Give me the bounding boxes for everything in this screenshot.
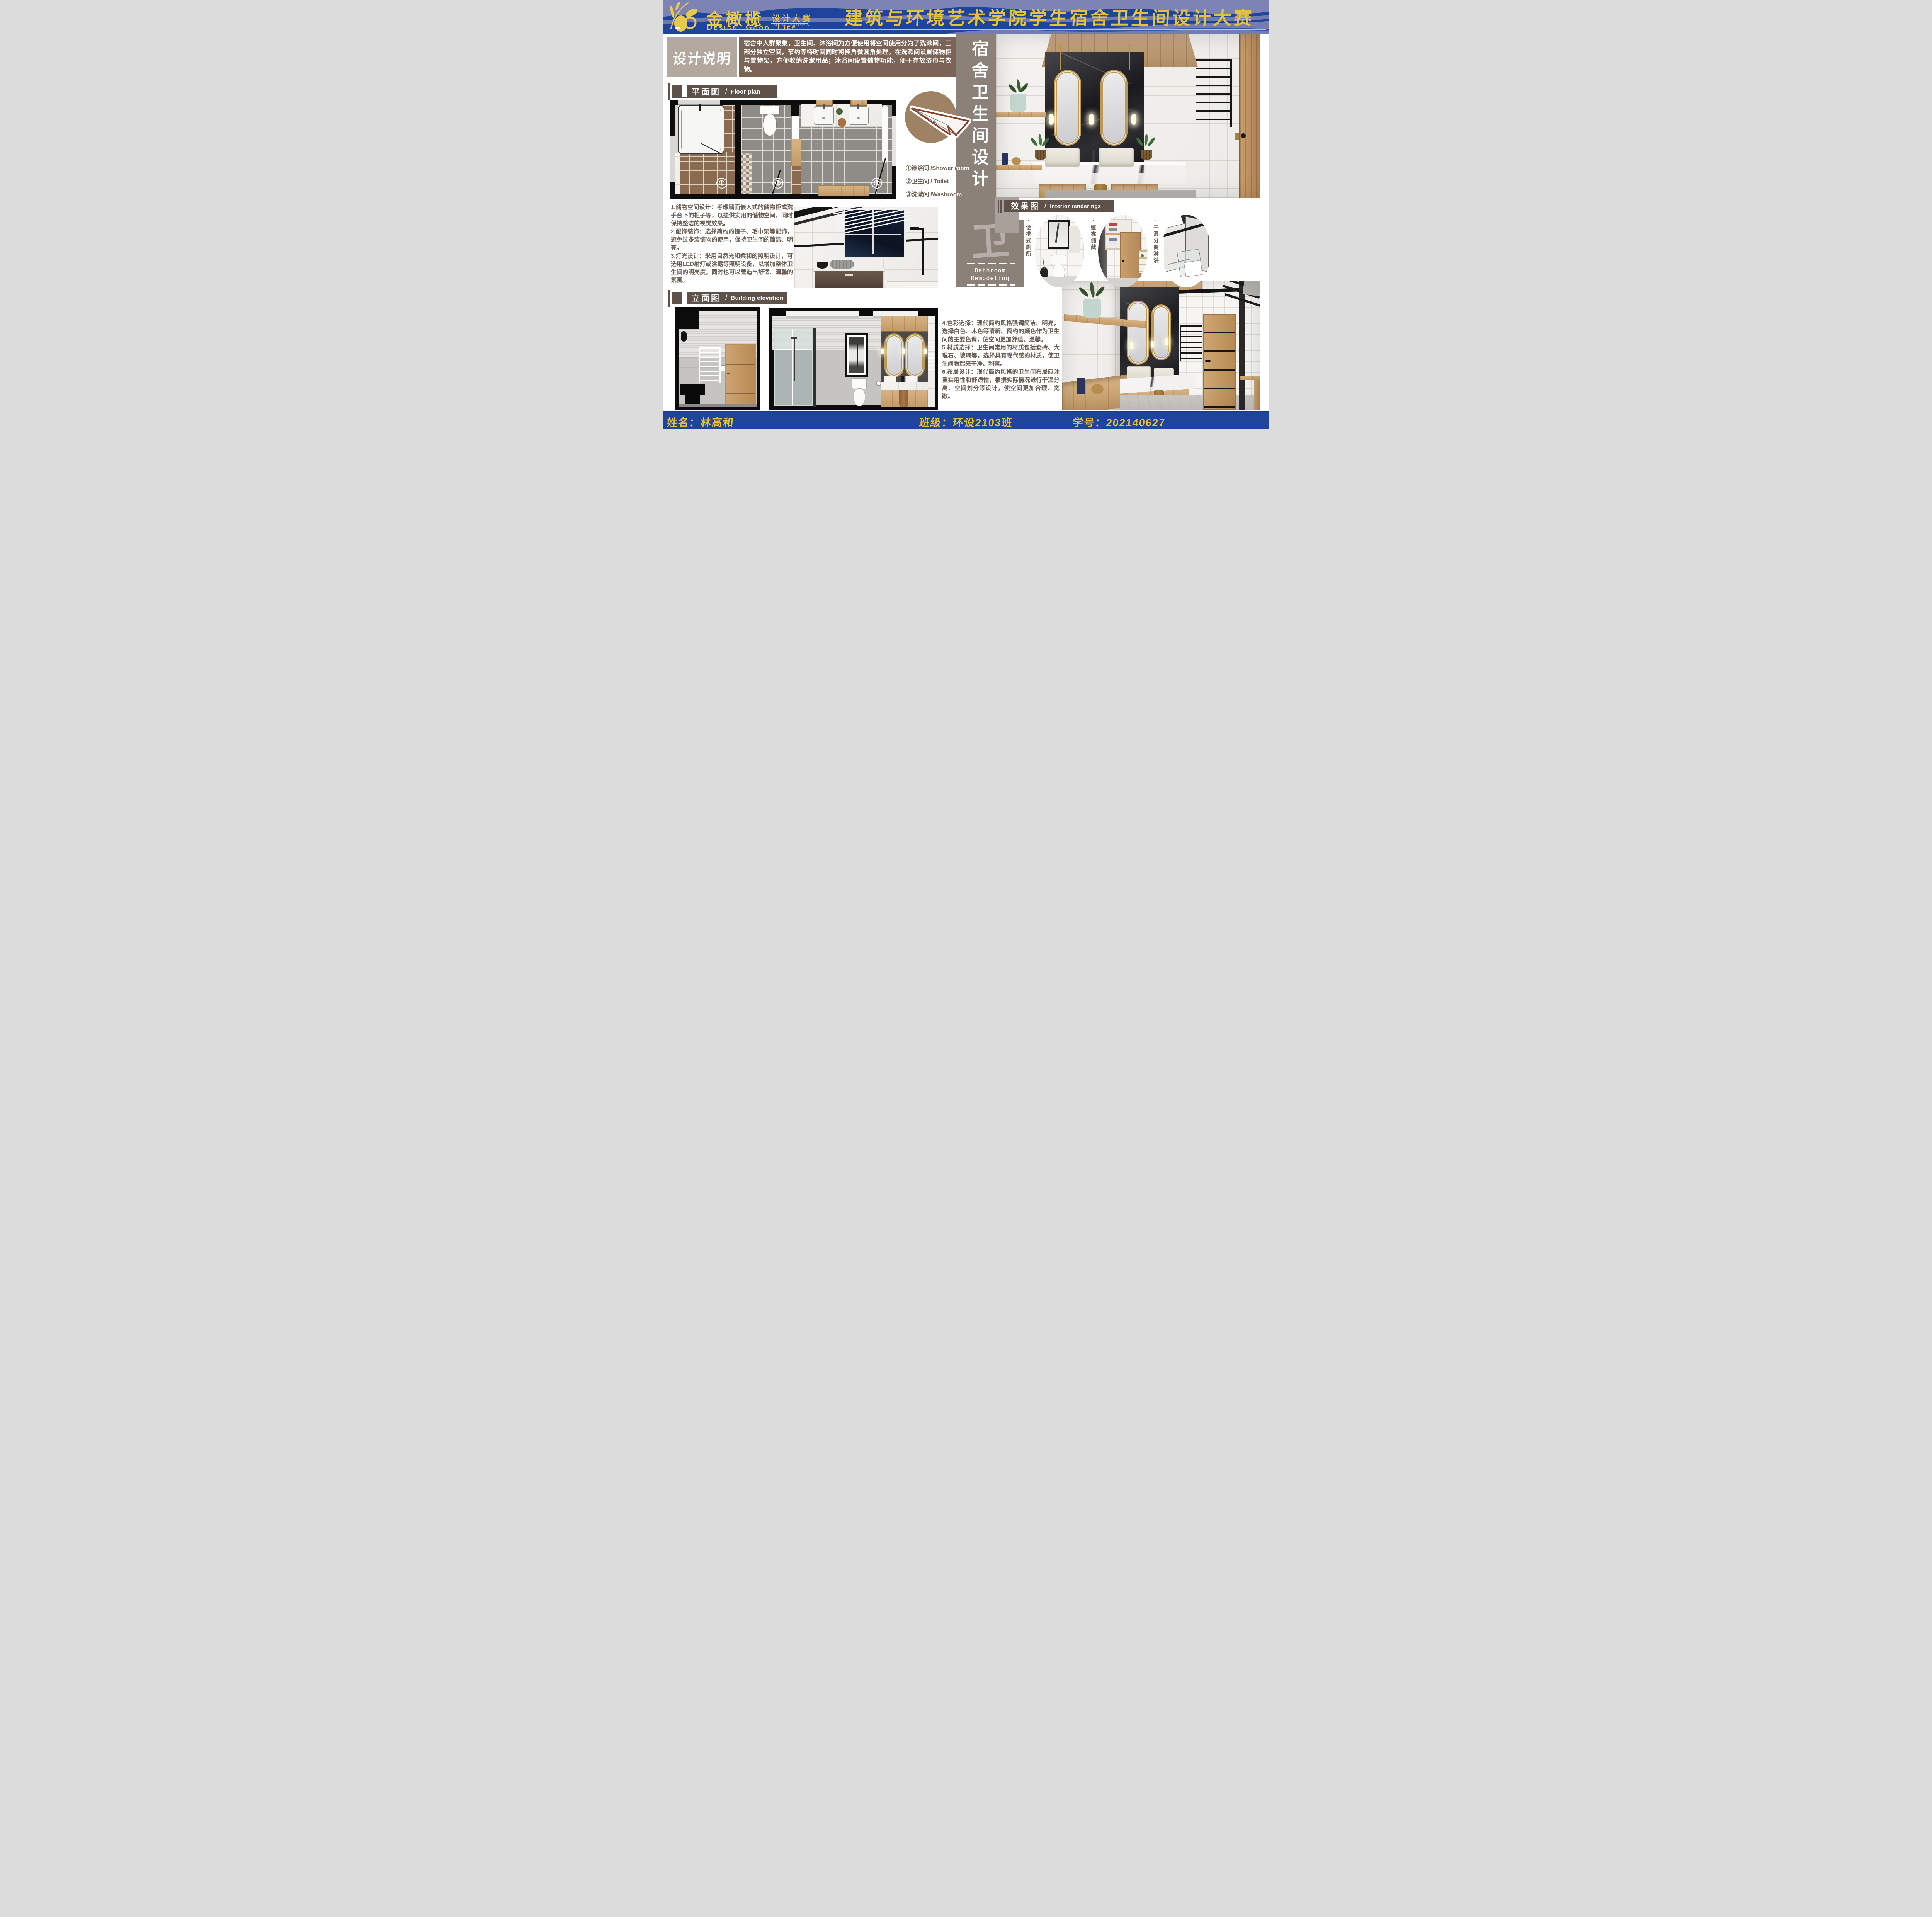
note-paragraph-3: 3.灯光设计：采用自然光和柔和的照明设计，可选用LED射灯或浴霸等照明设备，以增… bbox=[671, 252, 793, 284]
elevation-header-zh: 立面图 bbox=[692, 292, 721, 304]
elev1-console-top bbox=[680, 384, 705, 395]
plan-shower-floor bbox=[680, 150, 735, 194]
thumb-label-niche-storage: ·壁龛储藏 bbox=[1090, 217, 1097, 275]
elev1-black-notch bbox=[679, 311, 699, 329]
glass-frame-v bbox=[792, 329, 793, 405]
elev2-upper-cabinet bbox=[881, 316, 928, 332]
elev2-shower-glass bbox=[774, 328, 813, 406]
design-note-body: 宿舍中人群聚集，卫生间、沐浴间为方便使用将空间使用分为了洗漱间，三部分独立空间，… bbox=[744, 39, 951, 75]
header-banner: 金橄榄 · 设计大赛 DESIGN COMPETITION Design. Go… bbox=[663, 0, 1269, 34]
plan-wall-segment bbox=[791, 105, 799, 116]
elev2-mirror-1 bbox=[884, 333, 904, 378]
renderings-header-line-1 bbox=[998, 200, 999, 213]
elev1-sconce bbox=[681, 331, 687, 342]
thumb-oval-dry-wet-shower bbox=[1162, 215, 1211, 287]
elevation-header-sep: / bbox=[725, 294, 727, 302]
design-note-body-box: 宿舍中人群聚集，卫生间、沐浴间为方便使用将空间使用分为了洗漱间，三部分独立空间，… bbox=[739, 37, 956, 77]
photo-vignette bbox=[996, 34, 1260, 198]
footer-class: 班级：环设2103班 bbox=[918, 414, 1013, 429]
art-leaf-streak bbox=[1055, 223, 1060, 243]
brand-slogan: Design. Good. Life bbox=[707, 23, 797, 32]
plan-toilet-bowl bbox=[763, 114, 777, 136]
design-note-label: 设计说明 bbox=[666, 48, 738, 68]
elev1-door bbox=[725, 344, 756, 406]
footer-name: 姓名：林高和 bbox=[666, 414, 735, 429]
thumb-oval-portable-toilet bbox=[1035, 215, 1084, 287]
elevation-drawing-2 bbox=[769, 308, 938, 410]
floor-plan-header-line bbox=[668, 83, 670, 100]
elevation-header-line bbox=[668, 290, 670, 307]
photo-main-rendering bbox=[996, 34, 1260, 198]
window-mullion-h bbox=[845, 234, 901, 235]
shower-set-head bbox=[791, 337, 797, 339]
poster-title: 建筑与环境艺术学院学生宿舍卫生间设计大赛 bbox=[832, 3, 1267, 30]
elev2-vase bbox=[901, 376, 904, 382]
legend-text: ③洗漱间 /Washroom bbox=[906, 190, 962, 198]
footer-bar: 姓名：林高和 班级：环设2103班 学号：202140627 bbox=[663, 411, 1269, 429]
pin-vase bbox=[817, 262, 828, 269]
plan-brown-strip-2 bbox=[791, 166, 801, 194]
plan-sink-drain bbox=[822, 117, 825, 119]
renderings-header-sep: / bbox=[1044, 202, 1046, 210]
plan-shower-valve bbox=[699, 104, 701, 111]
plan-door-leaf-panel bbox=[791, 116, 799, 139]
plan-toilet-tank bbox=[760, 106, 780, 114]
floor-plan-header-notch bbox=[682, 83, 687, 97]
note-paragraph-2: 2.配饰装饰：选择简约的镜子、毛巾架等配饰，避免过多装饰物的使用，保持卫生间的简… bbox=[671, 228, 793, 252]
elev2-pendant-2 bbox=[902, 348, 905, 354]
plan-sink-2 bbox=[849, 106, 869, 125]
plan-sink-1 bbox=[814, 106, 834, 125]
plan-round-stool bbox=[838, 118, 846, 127]
banner-dash-top bbox=[967, 263, 1015, 264]
cabinet-body bbox=[815, 271, 883, 288]
elevation-header-en: Building elevation bbox=[731, 295, 783, 301]
elev2-towel-rungs bbox=[928, 342, 934, 370]
plan-wall-divider-1 bbox=[735, 105, 741, 194]
floor-plan-header-en: Floor plan bbox=[731, 88, 760, 95]
drawer-line bbox=[815, 281, 883, 281]
elev2-divider-dark bbox=[813, 328, 816, 407]
photo-shower-room bbox=[794, 207, 938, 288]
plan-bench bbox=[818, 185, 869, 196]
floor bbox=[1035, 277, 1084, 287]
elev1-console-base bbox=[685, 395, 700, 405]
glass-frame-h bbox=[775, 349, 812, 350]
plan-room-number-1: ① bbox=[716, 178, 727, 189]
side-shelves bbox=[1139, 250, 1147, 273]
door-handle bbox=[727, 373, 730, 374]
paper-plane-icon bbox=[910, 98, 971, 138]
footer-student-id: 学号：202140627 bbox=[1072, 414, 1166, 429]
plan-faucet bbox=[857, 104, 859, 109]
floor-plan-header-sep: / bbox=[725, 87, 727, 96]
olive-logo-icon bbox=[666, 0, 705, 34]
photo-secondary-rendering bbox=[1062, 281, 1260, 410]
plan-radiator bbox=[882, 105, 888, 163]
thumb-oval-niche-storage bbox=[1098, 215, 1148, 287]
note-paragraph-1: 1.储物空间设计：考虑墙面嵌入式的储物柜或洗手台下的柜子等，以提供实用的储物空间… bbox=[671, 203, 793, 228]
banner-dash-bottom bbox=[967, 284, 1015, 286]
plan-plant bbox=[836, 108, 843, 115]
shower-tray bbox=[887, 281, 938, 288]
art-tree-trunk bbox=[857, 344, 858, 367]
drawer-handle bbox=[845, 274, 853, 276]
art-image bbox=[849, 337, 864, 373]
shower-column bbox=[922, 229, 924, 275]
elev2-pendant-1 bbox=[881, 348, 884, 354]
art-frame bbox=[1048, 220, 1070, 249]
plan-sink-drain bbox=[857, 117, 860, 119]
towel-stack bbox=[1109, 238, 1117, 244]
banner-en-line2: Remodeling bbox=[956, 275, 1024, 282]
floor bbox=[1098, 278, 1148, 287]
note-paragraph-5: 5.材质选择：卫生间常用的材质包括瓷砖、大理石、玻璃等，选择具有现代感的材质，使… bbox=[942, 344, 1060, 368]
axon-shower-tray bbox=[1184, 260, 1203, 277]
elev2-pendant-3 bbox=[924, 348, 927, 354]
plan-shower-wall-tiles bbox=[723, 105, 735, 152]
shower-set bbox=[794, 339, 795, 381]
elev2-brass-column bbox=[899, 390, 908, 407]
tiny-plant bbox=[1141, 254, 1144, 257]
renderings-header: 效果图 / Interior renderings bbox=[1004, 200, 1114, 212]
notes-left-block: 1.储物空间设计：考虑墙面嵌入式的储物柜或洗手台下的柜子等，以提供实用的储物空间… bbox=[671, 203, 793, 284]
note-paragraph-6: 6.布局设计：现代简约风格的卫生间布局应注重实用性和舒适性，根据实际情况进行干湿… bbox=[942, 368, 1060, 400]
elevation-header-notch bbox=[682, 289, 687, 304]
elev2-cornice-1 bbox=[786, 311, 859, 318]
legend-text: ②卫生间 / Toilet bbox=[906, 177, 949, 185]
legend-text-white: ①淋浴间 /Shower room bbox=[956, 164, 969, 172]
plan-mosaic-strip bbox=[741, 153, 752, 194]
plan-marble-strip bbox=[675, 153, 680, 194]
brand-dot: · bbox=[759, 12, 762, 22]
elev2-art-frame bbox=[845, 333, 868, 377]
towel-stack bbox=[1109, 223, 1117, 231]
elev2-mirror-2 bbox=[905, 333, 925, 378]
plan-door-gap-right bbox=[892, 116, 896, 166]
thumb-label-portable-toilet: ·便携式厕所 bbox=[1025, 217, 1032, 286]
renderings-header-line-2 bbox=[1000, 200, 1002, 213]
renderings-header-en: Interior renderings bbox=[1050, 203, 1101, 209]
floor-plan-header: 平面图 / Floor plan bbox=[672, 85, 777, 98]
banner-en-line1: Bathroom bbox=[956, 267, 1024, 274]
plan-room-number-2: ② bbox=[772, 178, 783, 189]
elev2-toilet-bowl bbox=[854, 388, 865, 406]
floor-plan-drawing: ① ② ③ bbox=[670, 100, 896, 199]
niche-shelves bbox=[1069, 226, 1080, 253]
renderings-header-zh: 效果图 bbox=[1011, 200, 1040, 212]
photo-vignette bbox=[1062, 281, 1260, 410]
elev1-towel-ladder bbox=[699, 347, 721, 383]
plan-shower-tray bbox=[678, 105, 724, 154]
elev2-counter bbox=[881, 382, 928, 390]
floor-plan-header-zh: 平面图 bbox=[692, 86, 721, 97]
legend-text-white: ③洗漱间 /Washroom bbox=[956, 190, 962, 198]
elev2-toilet-tank bbox=[852, 378, 867, 389]
door-handle bbox=[1122, 260, 1124, 262]
design-note-label-box: 设计说明 bbox=[667, 37, 737, 77]
brand-competition-label: 设计大赛 bbox=[772, 12, 812, 24]
note-paragraph-4: 4.色彩选择：现代简约风格强调简洁、明亮，选择白色、木色等清新、简约的颜色作为卫… bbox=[942, 319, 1060, 344]
elevation-drawing-1 bbox=[675, 307, 760, 410]
plan-faucet bbox=[823, 104, 825, 109]
towel-roll bbox=[830, 260, 854, 269]
elev1-floor bbox=[679, 404, 757, 407]
thumb-label-dry-wet-separation: ·干湿分离淋浴 bbox=[1152, 217, 1160, 286]
poster-page: 金橄榄 · 设计大赛 DESIGN COMPETITION Design. Go… bbox=[663, 0, 1269, 429]
notes-right-block: 4.色彩选择：现代简约风格强调简洁、明亮，选择白色、木色等清新、简约的颜色作为卫… bbox=[942, 319, 1060, 400]
elevation-header: 立面图 / Building elevation bbox=[672, 292, 787, 304]
hand-shower bbox=[917, 260, 920, 267]
plan-room-number-3: ③ bbox=[871, 178, 882, 189]
